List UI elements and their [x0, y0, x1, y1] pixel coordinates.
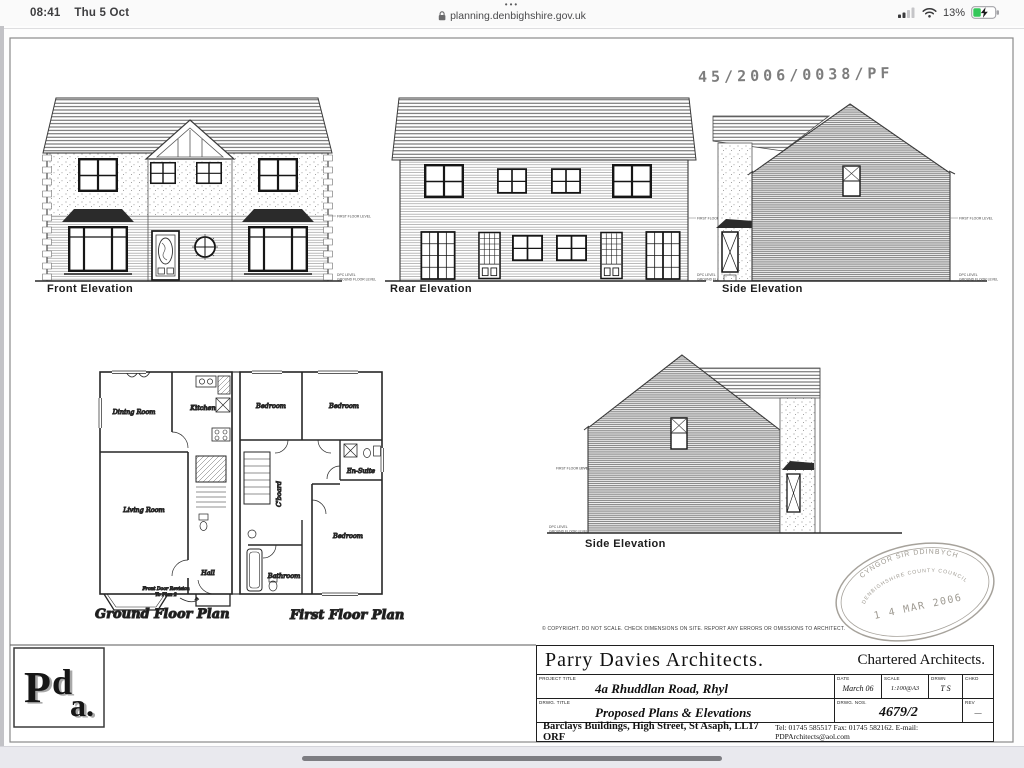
battery-percent: 13% [943, 7, 965, 19]
svg-text:DPC LEVEL: DPC LEVEL [337, 273, 356, 277]
url-text: planning.denbighshire.gov.uk [450, 10, 586, 22]
room-label-kitchen: Kitchen [189, 404, 215, 412]
room-label-hall: Hall [200, 569, 215, 577]
drawing-title: Proposed Plans & Elevations [537, 699, 834, 722]
ipad-screen: 08:41 Thu 5 Oct ••• planning.denbighshir… [0, 0, 1024, 768]
lock-icon [438, 11, 446, 21]
tab-overflow-dots[interactable]: ••• [438, 2, 586, 8]
svg-text:GROUND FLOOR LEVEL: GROUND FLOOR LEVEL [959, 278, 998, 282]
clock: 08:41 [30, 7, 60, 19]
title-block-project-row: PROJECT TITLE 4a Rhuddlan Road, Rhyl DAT… [537, 675, 993, 699]
svg-text:GROUND FLOOR LEVEL: GROUND FLOOR LEVEL [549, 530, 588, 534]
date-cell: DATE March 06 [835, 675, 882, 698]
firm-qualification: Chartered Architects. [858, 652, 985, 669]
firm-address: Barclays Buildings, High Street, St Asap… [543, 721, 775, 743]
status-bar: 08:41 Thu 5 Oct ••• planning.denbighshir… [0, 0, 1024, 26]
room-label-bedroom1: Bedroom [255, 402, 286, 410]
project-title-cell: PROJECT TITLE 4a Rhuddlan Road, Rhyl [537, 675, 835, 698]
drawing-number-cell: DRWG. NOS. 4679/2 [835, 699, 963, 722]
room-label-bedroom2: Bedroom [328, 402, 359, 410]
page-top-hairline [4, 28, 1024, 29]
svg-text:GROUND FLOOR LEVEL: GROUND FLOOR LEVEL [337, 278, 376, 282]
room-label-living: Living Room [122, 506, 164, 514]
home-indicator[interactable] [302, 756, 722, 761]
front-elevation-drawing: FIRST FLOOR LEVEL DPC LEVEL GROUND FLOOR… [35, 98, 376, 295]
cellular-signal-icon [898, 7, 916, 18]
side-elevation-lower-label: Side Elevation [585, 538, 666, 550]
room-label-bathroom: Bathroom [267, 572, 301, 580]
drawn-by-cell: DRWN T S [929, 675, 963, 698]
front-elevation-label: Front Elevation [47, 283, 133, 295]
rear-elevation-label: Rear Elevation [390, 283, 472, 295]
title-block-contact-row: Barclays Buildings, High Street, St Asap… [537, 723, 993, 740]
svg-text:FIRST FLOOR LEVEL: FIRST FLOOR LEVEL [556, 467, 590, 471]
ground-floor-plan-label: Ground Floor Plan [95, 607, 230, 622]
room-label-dining: Dining Room [112, 408, 156, 416]
side-elevation-upper-label: Side Elevation [722, 283, 803, 295]
title-block: Parry Davies Architects. Chartered Archi… [536, 645, 994, 742]
status-left: 08:41 Thu 5 Oct [30, 7, 129, 19]
room-label-bedroom3: Bedroom [332, 532, 363, 540]
logo-letter-p: P [24, 663, 51, 712]
status-right: 13% [898, 6, 1000, 19]
room-label-cupboard: C'board [275, 481, 283, 507]
svg-text:DPC LEVEL: DPC LEVEL [549, 525, 568, 529]
front-door-note: Front Door Revision [141, 586, 189, 592]
drawing-title-cell: DRWG. TITLE Proposed Plans & Elevations [537, 699, 835, 722]
copyright-note: © COPYRIGHT. DO NOT SCALE. CHECK DIMENSI… [542, 626, 1012, 632]
title-block-firm-row: Parry Davies Architects. Chartered Archi… [537, 646, 993, 675]
date: Thu 5 Oct [74, 7, 129, 19]
project-title: 4a Rhuddlan Road, Rhyl [537, 675, 834, 698]
architect-logo: P d a. P d a. [14, 648, 104, 727]
first-floor-plan-label: First Floor Plan [289, 608, 404, 623]
logo-letter-a: a. [70, 687, 94, 723]
battery-charging-icon [971, 6, 1000, 19]
svg-text:FIRST FLOOR LEVEL: FIRST FLOOR LEVEL [959, 217, 993, 221]
firm-contact: Tel: 01745 585517 Fax: 01745 582162. E-m… [775, 723, 987, 741]
svg-text:DPC LEVEL: DPC LEVEL [959, 273, 978, 277]
firm-name: Parry Davies Architects. [545, 649, 764, 672]
address-bar[interactable]: planning.denbighshire.gov.uk [438, 10, 586, 22]
revision-cell: REV — [963, 699, 993, 722]
scale-cell: SCALE 1:100@A3 [882, 675, 929, 698]
wifi-icon [922, 7, 937, 18]
checked-by-cell: CHKD [963, 675, 993, 698]
svg-text:To Plan 2: To Plan 2 [155, 592, 177, 598]
svg-text:DPC LEVEL: DPC LEVEL [697, 273, 716, 277]
title-block-drawing-row: DRWG. TITLE Proposed Plans & Elevations … [537, 699, 993, 723]
bottom-bar [0, 746, 1024, 768]
room-label-ensuite: En-Suite [346, 467, 375, 475]
status-center: ••• planning.denbighshire.gov.uk [438, 2, 586, 22]
rear-elevation-drawing: FIRST FLOOR LEVEL DPC LEVEL GROUND FLOOR… [385, 98, 736, 295]
svg-text:FIRST FLOOR LEVEL: FIRST FLOOR LEVEL [337, 215, 371, 219]
page-scan-edge [0, 26, 4, 746]
